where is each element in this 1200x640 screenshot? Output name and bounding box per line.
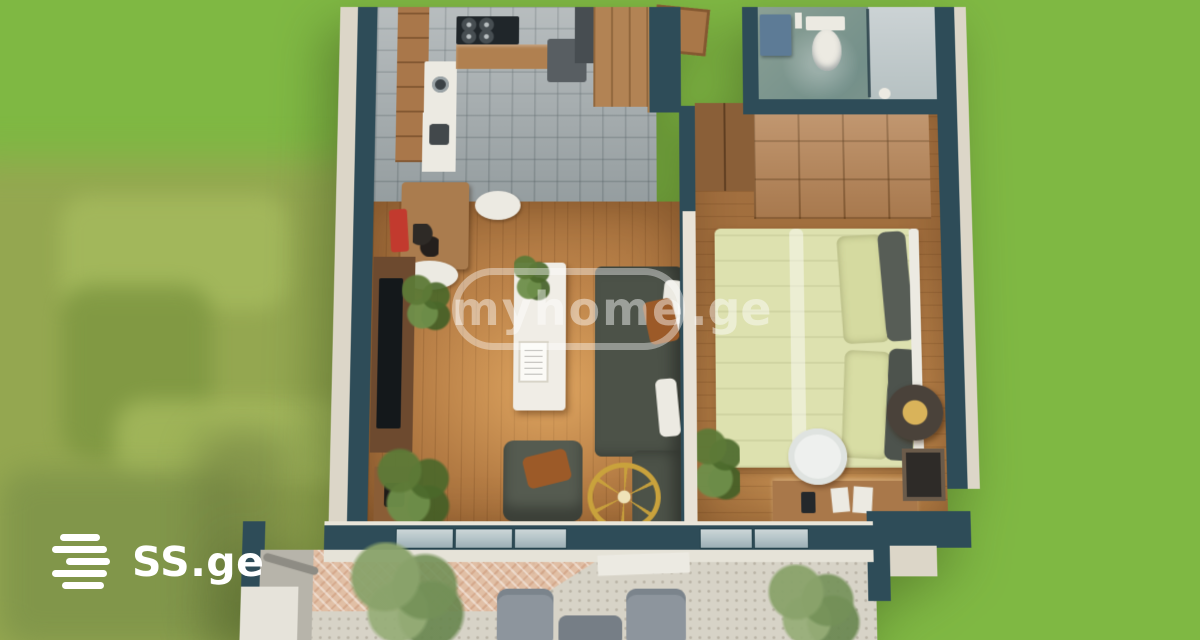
- hall-cabinet: [593, 7, 648, 107]
- desk-papers: [852, 486, 873, 514]
- watermark-suffix: .ge: [690, 282, 772, 336]
- bedroom-plant: [695, 422, 740, 503]
- floor-frame: [902, 449, 946, 501]
- balcony-mat: [597, 552, 690, 576]
- lounge-chair: [626, 589, 686, 640]
- divider-wall-upper: [679, 106, 695, 213]
- watermark-pill: myhome: [452, 268, 685, 350]
- balcony-tree: [759, 564, 865, 640]
- toilet-tank: [806, 16, 845, 30]
- kitchen-sink: [429, 124, 449, 145]
- desk-phone: [801, 492, 816, 513]
- red-tray: [389, 209, 409, 253]
- balcony-low-table: [558, 615, 622, 640]
- bedroom-wardrobe: [695, 103, 755, 191]
- bathroom-wall-left: [742, 7, 759, 113]
- lounge-chair: [497, 589, 554, 640]
- glass-pane: [700, 528, 753, 548]
- living-plant-large: [375, 447, 454, 528]
- listing-photo: myhome .ge SS.ge: [0, 0, 1200, 640]
- bathroom-vanity: [760, 14, 792, 55]
- living-plant: [401, 272, 452, 331]
- tv-screen: [376, 278, 403, 428]
- toilet-bowl: [812, 29, 842, 70]
- glass-pane: [514, 528, 567, 548]
- desk-papers: [830, 487, 850, 513]
- balcony-tree: [338, 542, 471, 640]
- ssge-logo: SS.ge: [50, 532, 264, 591]
- desk-chair: [788, 428, 848, 484]
- tall-appliance: [575, 7, 595, 63]
- glass-pane: [754, 528, 809, 548]
- coffee-set: [413, 224, 439, 257]
- cooktop: [456, 16, 519, 44]
- dining-chair: [475, 191, 521, 220]
- watermark-text: myhome: [452, 282, 685, 336]
- ssge-logo-icon: [50, 532, 112, 591]
- hall-wall: [649, 7, 681, 113]
- kitchen-counter: [456, 44, 552, 68]
- shower-drain: [879, 88, 891, 99]
- divider-wall-lower: [680, 211, 698, 530]
- step-wall-face: [890, 546, 938, 577]
- bottom-step-wall: [867, 511, 972, 548]
- planter-box: [239, 587, 298, 640]
- bathroom-wall-bottom: [743, 99, 940, 114]
- bedroom-dresser: [753, 106, 931, 219]
- ssge-logo-text: SS.ge: [132, 538, 264, 586]
- round-nightstand: [886, 385, 944, 441]
- shower-area: [868, 7, 937, 101]
- towel-rail: [795, 13, 802, 29]
- myhome-watermark: myhome .ge: [452, 268, 772, 350]
